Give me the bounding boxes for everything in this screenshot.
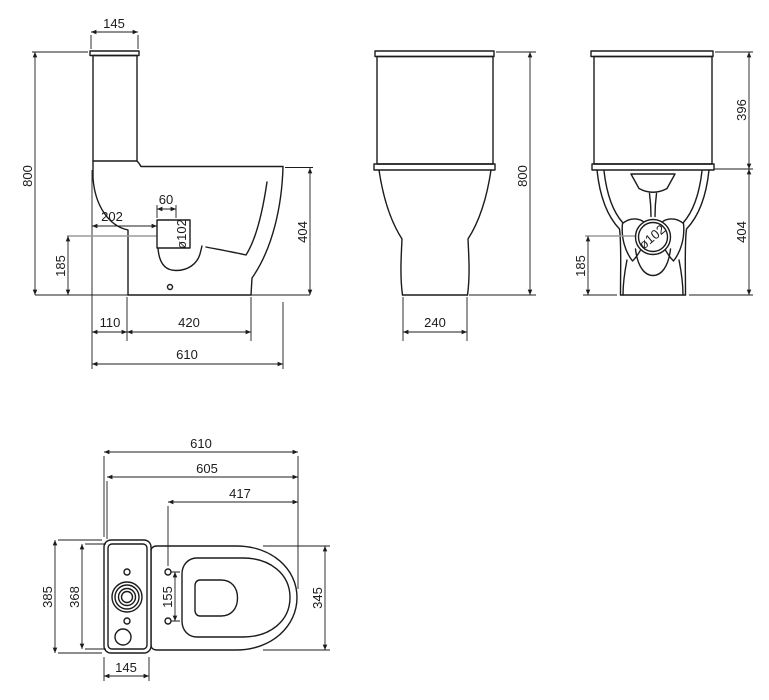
cistern-lid-outline — [104, 540, 151, 653]
inlet-pipe-lines — [650, 194, 657, 217]
dim-label-wall-to-foot: 110 — [100, 315, 121, 330]
hinge-hole-bottom — [165, 618, 171, 624]
inner-rim-left — [604, 171, 623, 223]
side-view: 145 800 202 60 ø102 185 404 110 420 610 — [20, 16, 313, 369]
dim-label-lid-width: 385 — [40, 586, 55, 608]
inlet-recess — [631, 174, 675, 192]
bowl-inner-curve — [206, 182, 267, 255]
bowl-right-side — [685, 170, 709, 295]
bowl-right-side — [468, 170, 492, 295]
dim-label-side-outlet-height: 185 — [53, 255, 68, 277]
seat-joint-band — [374, 164, 495, 170]
fixing-hole — [168, 285, 173, 290]
seat-joint-band — [592, 164, 714, 170]
dim-label-hinge-to-front: 417 — [229, 486, 251, 501]
toilet-dimension-drawing: 145 800 202 60 ø102 185 404 110 420 610 — [0, 0, 769, 700]
hinge-hole-top — [165, 569, 171, 575]
bowl-left-side — [379, 170, 403, 295]
bowl-left-side — [597, 170, 621, 295]
dim-label-outlet-setback: 202 — [101, 209, 123, 224]
cistern-lid — [591, 51, 713, 57]
dim-label-pan-width: 345 — [310, 587, 325, 609]
rear-view: ø102 185 396 404 — [573, 51, 753, 295]
dim-label-hinge-spacing: 155 — [160, 586, 175, 608]
ext-lines-right — [689, 52, 753, 295]
dim-label-side-pan-height: 404 — [295, 221, 310, 243]
cistern-lid — [375, 51, 494, 57]
bowl-back — [93, 161, 128, 295]
dim-label-cistern-height: 396 — [734, 99, 749, 121]
dim-label-side-outlet-diameter: ø102 — [174, 219, 189, 249]
dim-label-front-overall-height: 800 — [515, 165, 530, 187]
dim-label-cistern-width: 368 — [67, 586, 82, 608]
ext-lines-bottom — [127, 297, 283, 369]
dim-label-foot-length: 420 — [178, 315, 200, 330]
top-view: 610 605 417 385 368 155 345 145 — [40, 436, 330, 681]
ext-lines-145 — [91, 35, 138, 49]
dim-label-top-overall-depth: 610 — [190, 436, 212, 451]
dim-label-cistern-depth: 145 — [115, 660, 137, 675]
dim-label-side-cistern-depth: 145 — [103, 16, 125, 31]
cistern-body — [377, 57, 493, 165]
seat-ring — [182, 558, 290, 637]
bowl-opening — [195, 580, 238, 616]
dim-label-rear-outlet-height: 185 — [573, 255, 588, 277]
inner-rim-right — [683, 171, 702, 223]
front-view: 800 240 — [374, 51, 536, 341]
pedestal-inner-sides — [623, 260, 683, 295]
cistern-body — [93, 56, 137, 162]
dim-label-pan-depth: 605 — [196, 461, 218, 476]
dim-label-rear-pan-height: 404 — [734, 221, 749, 243]
dim-label-foot-width: 240 — [424, 315, 446, 330]
drawing-canvas: 145 800 202 60 ø102 185 404 110 420 610 — [0, 0, 769, 700]
dim-label-side-overall-height: 800 — [20, 165, 35, 187]
dim-label-side-overall-depth: 610 — [176, 347, 198, 362]
dim-label-inlet-width: 60 — [159, 192, 173, 207]
cistern-body — [594, 57, 712, 165]
